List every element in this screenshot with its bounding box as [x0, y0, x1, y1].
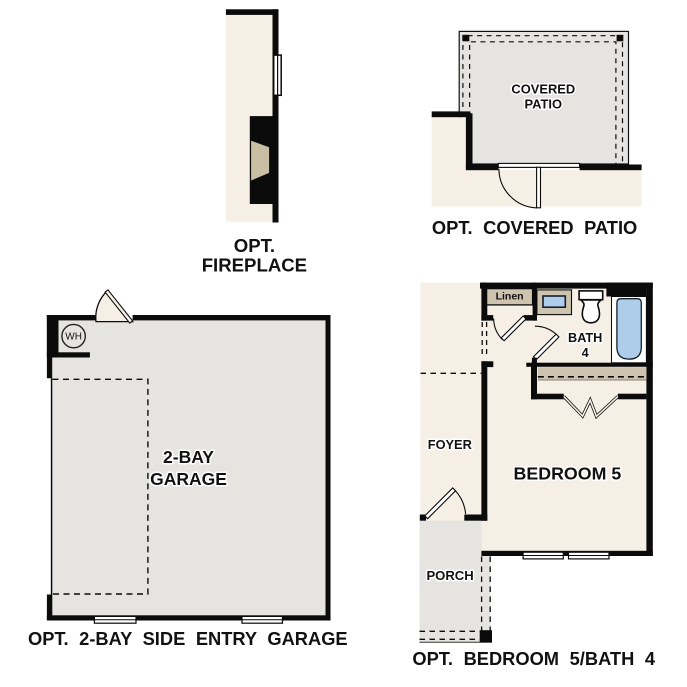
svg-text:WH: WH	[65, 332, 82, 343]
svg-text:OPT. 2-BAY SIDE ENTRY GARAGE: OPT. 2-BAY SIDE ENTRY GARAGE	[28, 628, 348, 649]
svg-text:OPT. BEDROOM 5/BATH 4: OPT. BEDROOM 5/BATH 4	[412, 648, 655, 669]
svg-text:2-BAY: 2-BAY	[163, 447, 214, 467]
svg-text:Linen: Linen	[496, 290, 524, 302]
svg-text:OPT. COVERED PATIO: OPT. COVERED PATIO	[432, 217, 637, 238]
svg-text:COVERED: COVERED	[511, 82, 575, 97]
svg-text:PORCH: PORCH	[426, 568, 473, 583]
svg-text:4: 4	[582, 346, 589, 360]
svg-text:OPT.: OPT.	[234, 235, 275, 256]
svg-text:PATIO: PATIO	[525, 97, 562, 112]
svg-text:BEDROOM 5: BEDROOM 5	[514, 464, 622, 484]
svg-text:FOYER: FOYER	[428, 437, 472, 452]
svg-text:FIREPLACE: FIREPLACE	[202, 254, 307, 275]
svg-text:BATH: BATH	[568, 331, 602, 345]
svg-text:GARAGE: GARAGE	[150, 469, 227, 489]
